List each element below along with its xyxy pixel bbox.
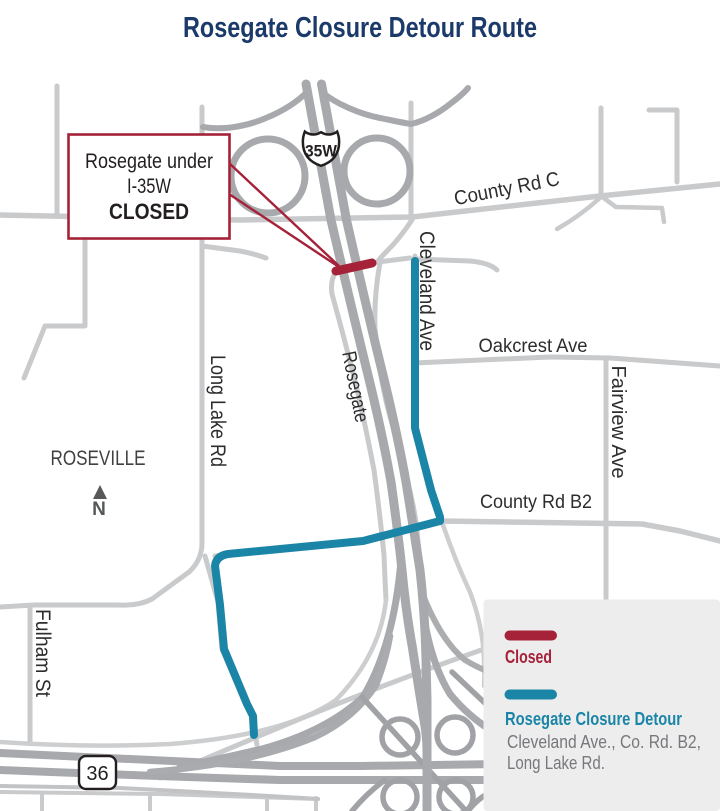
svg-text:ROSEVILLE: ROSEVILLE	[51, 447, 146, 470]
svg-text:Closed: Closed	[505, 647, 552, 667]
svg-text:CLOSED: CLOSED	[109, 199, 189, 224]
svg-text:I-35W: I-35W	[127, 175, 171, 198]
svg-text:Fulham St: Fulham St	[31, 609, 54, 697]
svg-text:Long Lake Rd: Long Lake Rd	[206, 355, 229, 467]
svg-text:N: N	[92, 499, 106, 520]
svg-text:Cleveland Ave., Co. Rd. B2,: Cleveland Ave., Co. Rd. B2,	[507, 732, 701, 752]
svg-text:35W: 35W	[305, 143, 337, 161]
svg-text:Oakcrest Ave: Oakcrest Ave	[479, 336, 588, 357]
svg-text:Rosegate under: Rosegate under	[85, 150, 213, 173]
svg-text:Long Lake Rd.: Long Lake Rd.	[507, 753, 605, 773]
svg-text:Fairview Ave: Fairview Ave	[607, 366, 629, 479]
svg-text:County Rd B2: County Rd B2	[480, 492, 592, 513]
svg-text:36: 36	[86, 763, 108, 785]
svg-text:Rosegate Closure Detour: Rosegate Closure Detour	[505, 709, 682, 729]
svg-text:Cleveland Ave: Cleveland Ave	[415, 231, 438, 351]
svg-text:Rosegate Closure Detour Route: Rosegate Closure Detour Route	[183, 12, 537, 44]
